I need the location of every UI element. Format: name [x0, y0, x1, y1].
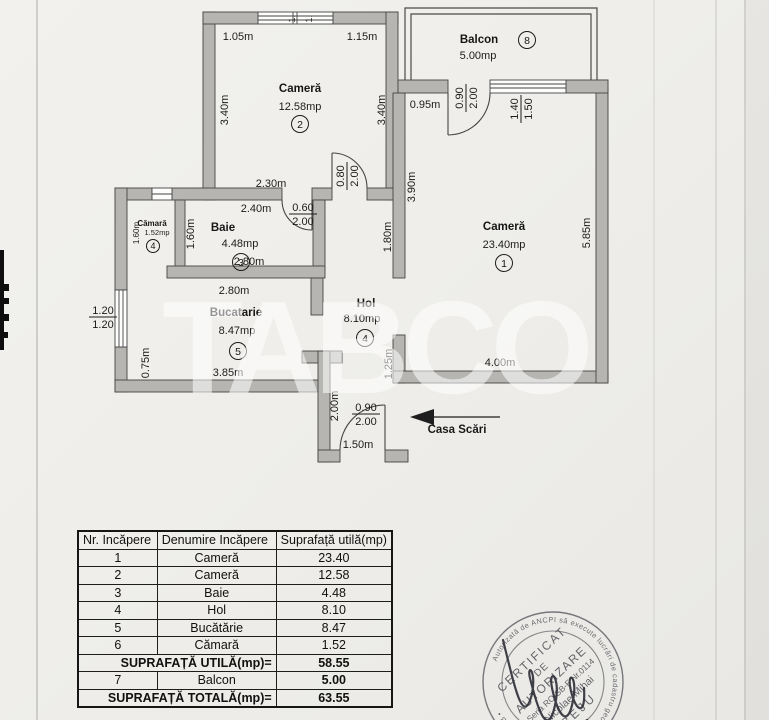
table-header-row: Nr. IncăpereDenumire IncăpereSuprafață u…	[78, 531, 392, 549]
dimension-value: 1.40	[509, 98, 521, 119]
dimension-label: 1.	[287, 15, 297, 23]
dimension-value: 1.80m	[382, 222, 394, 253]
dimension-value: 1.15m	[347, 31, 378, 43]
dimension-value: 1.60m	[185, 219, 197, 250]
row-number-cell: 6	[78, 637, 157, 655]
room-area: 8.10mp	[344, 313, 381, 325]
column-header: Denumire Incăpere	[157, 531, 276, 549]
room-label: Bucatarie8.47mp5	[210, 307, 262, 360]
dimension-label: 2.80m	[219, 285, 250, 297]
dimension-value: 1.	[304, 15, 314, 23]
room-name-cell: Cameră	[157, 549, 276, 567]
room-area-cell: 1.52	[276, 637, 392, 655]
room-area: 5.00mp	[460, 50, 497, 62]
left-margin-artifact	[0, 250, 9, 350]
room-area-cell: 23.40	[276, 549, 392, 567]
dimension-value: 1.25m	[383, 349, 395, 380]
room-area: 1.52mp	[144, 228, 169, 237]
dimension-value: 2.00	[468, 87, 480, 108]
table-row: 1Cameră23.40	[78, 549, 392, 567]
dimension-value: 0.80	[335, 165, 347, 186]
room-name-cell: Hol	[157, 602, 276, 620]
room-number: 2	[297, 119, 303, 131]
area-table: Nr. IncăpereDenumire IncăpereSuprafață u…	[77, 530, 393, 708]
dimension-value: 0.60	[292, 202, 313, 214]
casa-scari-label: Casa Scări	[428, 424, 487, 436]
dimension-value: 0.90	[454, 87, 466, 108]
total-value-cell: 63.55	[276, 689, 392, 707]
dimension-label: 1.	[304, 15, 314, 23]
dimension-value: 5.85m	[581, 218, 593, 249]
room-name-cell: Cameră	[157, 567, 276, 585]
room-label: Balcon5.00mp8	[460, 32, 536, 63]
room-name-cell: Cămară	[157, 637, 276, 655]
room-area-cell: 12.58	[276, 567, 392, 585]
dimension-value: 1.	[287, 15, 297, 23]
dimension-label: 1.25m	[383, 349, 395, 380]
dimension-value: 2.40m	[241, 203, 272, 215]
dimension-label: 1.80m	[382, 222, 394, 253]
dimension-label: 5.85m	[581, 218, 593, 249]
total-label-cell: SUPRAFAȚĂ UTILĂ(mp)=	[78, 654, 276, 672]
dimension-value: 3.85m	[213, 367, 244, 379]
dimension-value: 0.95m	[410, 99, 441, 111]
dimension-value: 1.50m	[343, 439, 374, 451]
dimension-value: 1.50	[523, 98, 535, 119]
room-number: 8	[524, 35, 530, 47]
dimension-value: 3.90m	[406, 172, 418, 203]
row-number-cell: 2	[78, 567, 157, 585]
table-row: 4Hol8.10	[78, 602, 392, 620]
dimension-label: 0.75m	[140, 348, 152, 379]
dimension-value: 0.75m	[140, 348, 152, 379]
row-number-cell: 7	[78, 672, 157, 690]
total-label-cell: SUPRAFAȚĂ TOTALĂ(mp)=	[78, 689, 276, 707]
table-row: SUPRAFAȚĂ TOTALĂ(mp)=63.55	[78, 689, 392, 707]
room-name-cell: Bucătărie	[157, 619, 276, 637]
dimension-value: 4.00m	[485, 357, 516, 369]
table-row: SUPRAFAȚĂ UTILĂ(mp)=58.55	[78, 654, 392, 672]
room-label: Hol8.10mp4	[344, 298, 381, 347]
certification-stamp: Autorizată de ANCPI să execute lucrări d…	[483, 612, 623, 720]
window-camara	[152, 188, 172, 200]
table-row: 6Cămară1.52	[78, 637, 392, 655]
window-bucatarie	[115, 290, 127, 347]
table-row: 5Bucătărie8.47	[78, 619, 392, 637]
room-area-cell: 8.47	[276, 619, 392, 637]
room-number: 3	[238, 257, 244, 269]
room-name: Cameră	[279, 83, 322, 95]
dimension-value: 2.30m	[256, 178, 287, 190]
row-number-cell: 3	[78, 584, 157, 602]
dimension-value: 1.20	[92, 305, 113, 317]
room-area-cell: 8.10	[276, 602, 392, 620]
dimension-value: 1.20	[92, 319, 113, 331]
room-name-cell: Baie	[157, 584, 276, 602]
room-name: Cameră	[483, 221, 526, 233]
balcony-outline	[405, 8, 597, 80]
dimension-label: 3.40m	[376, 95, 388, 126]
dimension-label: 0.802.00	[335, 162, 361, 190]
room-area: 4.48mp	[222, 238, 259, 250]
room-area: 23.40mp	[483, 239, 526, 251]
room-name: Balcon	[460, 34, 498, 46]
dimension-label: 1.50m	[343, 439, 374, 451]
arrow-head-icon	[410, 409, 434, 425]
dimension-label: 2.00m	[329, 391, 341, 422]
dimension-label: 3.85m	[213, 367, 244, 379]
dimension-label: 3.90m	[406, 172, 418, 203]
staircase-annotation: Casa Scări	[410, 409, 500, 436]
room-label: Cămară1.52mp4	[137, 219, 169, 253]
row-number-cell: 5	[78, 619, 157, 637]
room-name: Hol	[357, 298, 376, 310]
dimension-label: 0.902.00	[454, 84, 480, 112]
dimension-label: 1.60m	[185, 219, 197, 250]
room-area: 8.47mp	[219, 325, 256, 337]
dimension-value: 1.05m	[223, 31, 254, 43]
room-label: Cameră23.40mp1	[483, 221, 526, 272]
dimension-label: 3.40m	[219, 95, 231, 126]
dimension-value: 2.00	[292, 216, 313, 228]
table-row: 7Balcon5.00	[78, 672, 392, 690]
dimension-value: 3.40m	[219, 95, 231, 126]
total-value-cell: 58.55	[276, 654, 392, 672]
dimension-label: 1.05m	[223, 31, 254, 43]
dimension-label: 2.30m	[256, 178, 287, 190]
column-header: Nr. Incăpere	[78, 531, 157, 549]
dimension-value: 2.00	[355, 416, 376, 428]
table-row: 3Baie4.48	[78, 584, 392, 602]
table-row: 2Cameră12.58	[78, 567, 392, 585]
dimension-label: 1.401.50	[509, 95, 535, 123]
room-number: 1	[501, 258, 507, 270]
dimension-label: 2.40m	[241, 203, 272, 215]
room-name: Baie	[211, 222, 235, 234]
column-header: Suprafață utilă(mp)	[276, 531, 392, 549]
dimension-value: 3.40m	[376, 95, 388, 126]
dimension-label: 0.95m	[410, 99, 441, 111]
room-area-cell: 5.00	[276, 672, 392, 690]
room-number: 4	[362, 333, 368, 345]
room-name-cell: Balcon	[157, 672, 276, 690]
dimension-value: 2.80m	[219, 285, 250, 297]
room-name: Cămară	[137, 219, 167, 228]
row-number-cell: 4	[78, 602, 157, 620]
dimension-value: 2.00m	[329, 391, 341, 422]
dimension-label: 4.00m	[485, 357, 516, 369]
scanned-floor-plan-page: 1.05m1.15m3.40m3.40m2.30m2.40m0.802.000.…	[0, 0, 769, 720]
room-number: 4	[150, 241, 155, 251]
room-label: Cameră12.58mp2	[279, 83, 322, 133]
room-area-cell: 4.48	[276, 584, 392, 602]
room-name: Bucatarie	[210, 307, 262, 319]
dimension-label: 1.15m	[347, 31, 378, 43]
window-camera1	[490, 80, 566, 93]
dimension-value: 0.90	[355, 402, 376, 414]
room-number: 5	[235, 346, 241, 358]
row-number-cell: 1	[78, 549, 157, 567]
dimension-value: 2.00	[349, 165, 361, 186]
dimension-label: 1.201.20	[89, 305, 117, 331]
room-area: 12.58mp	[279, 101, 322, 113]
